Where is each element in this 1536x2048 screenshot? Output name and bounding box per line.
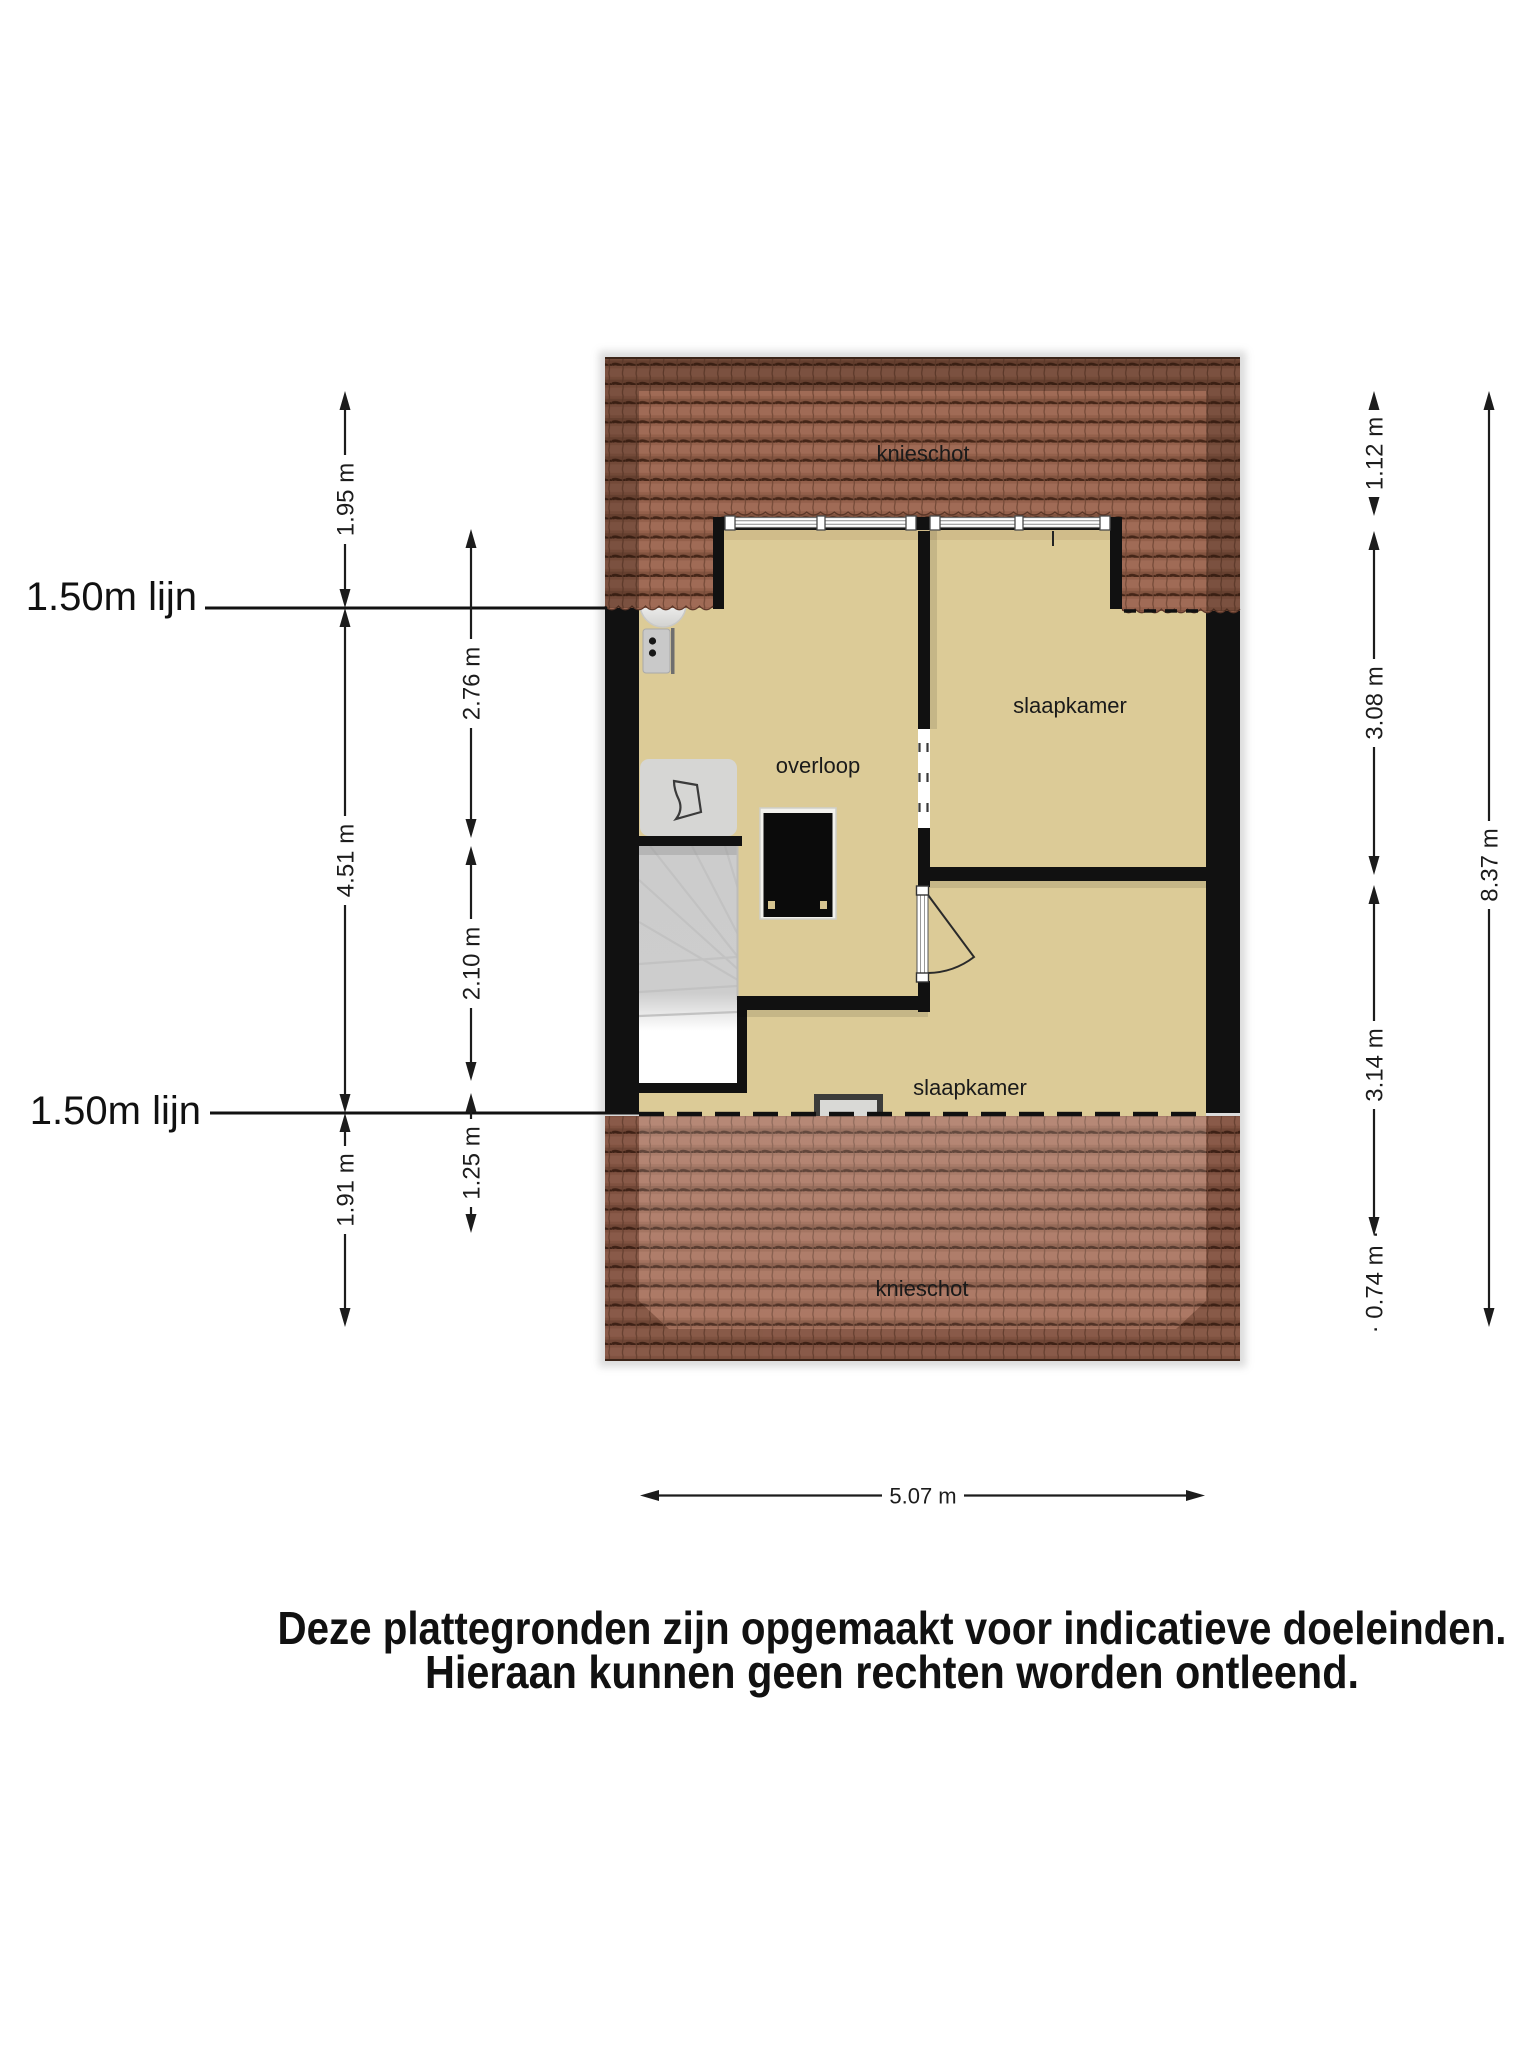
svg-text:4.51 m: 4.51 m xyxy=(333,824,360,897)
svg-text:1.95 m: 1.95 m xyxy=(333,463,360,536)
svg-text:5.07 m: 5.07 m xyxy=(889,1483,956,1508)
svg-text:1.12 m: 1.12 m xyxy=(1362,417,1389,490)
svg-text:1.50m lijn: 1.50m lijn xyxy=(26,575,197,619)
svg-text:8.37 m: 8.37 m xyxy=(1477,828,1504,901)
svg-text:Hieraan kunnen geen rechten wo: Hieraan kunnen geen rechten worden ontle… xyxy=(425,1646,1359,1698)
svg-text:3.08 m: 3.08 m xyxy=(1362,666,1389,739)
svg-text:slaapkamer: slaapkamer xyxy=(1013,693,1127,718)
svg-text:2.76 m: 2.76 m xyxy=(459,647,486,720)
svg-text:slaapkamer: slaapkamer xyxy=(913,1075,1027,1100)
svg-text:knieschot: knieschot xyxy=(876,1276,969,1301)
svg-text:· 0.74 m ·: · 0.74 m · xyxy=(1362,1231,1389,1334)
svg-text:overloop: overloop xyxy=(776,753,860,778)
svg-text:1.50m lijn: 1.50m lijn xyxy=(30,1089,201,1133)
svg-text:1.91 m: 1.91 m xyxy=(333,1153,360,1226)
svg-text:2.10 m: 2.10 m xyxy=(459,927,486,1000)
svg-text:1.25 m: 1.25 m xyxy=(459,1126,486,1199)
svg-text:3.14 m: 3.14 m xyxy=(1362,1028,1389,1101)
svg-text:knieschot: knieschot xyxy=(877,441,970,466)
